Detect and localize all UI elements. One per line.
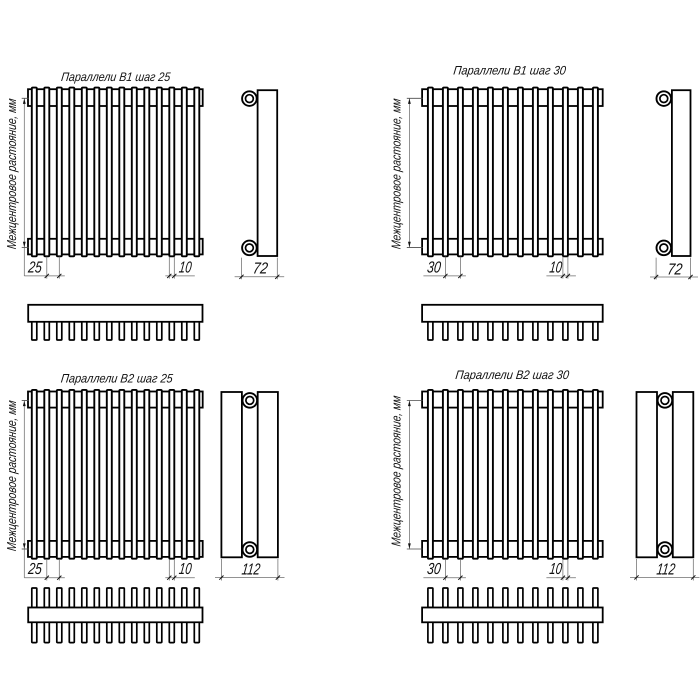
svg-text:Параллели В2 шаг 30: Параллели В2 шаг 30	[455, 368, 570, 382]
svg-text:Межцентровое растояние, мм: Межцентровое растояние, мм	[389, 98, 404, 250]
svg-text:10: 10	[178, 258, 193, 276]
svg-text:30: 30	[426, 560, 442, 578]
svg-text:30: 30	[426, 258, 442, 276]
svg-text:Параллели В1 шаг 25: Параллели В1 шаг 25	[60, 70, 171, 84]
svg-text:112: 112	[656, 561, 677, 579]
svg-text:10: 10	[548, 560, 563, 578]
svg-text:25: 25	[26, 258, 43, 276]
svg-text:10: 10	[548, 258, 563, 276]
svg-text:Параллели В1 шаг 30: Параллели В1 шаг 30	[453, 63, 567, 77]
svg-text:Межцентровое растояние, мм: Межцентровое растояние, мм	[389, 395, 404, 547]
svg-text:10: 10	[178, 560, 193, 578]
svg-text:112: 112	[241, 561, 262, 579]
svg-text:72: 72	[252, 260, 269, 278]
svg-text:Межцентровое растояние, мм: Межцентровое растояние, мм	[4, 399, 19, 551]
svg-text:25: 25	[26, 560, 43, 578]
svg-text:72: 72	[666, 260, 683, 278]
svg-text:Параллели В2 шаг 25: Параллели В2 шаг 25	[60, 371, 173, 385]
svg-text:Межцентровое растояние, мм: Межцентровое растояние, мм	[4, 98, 19, 250]
